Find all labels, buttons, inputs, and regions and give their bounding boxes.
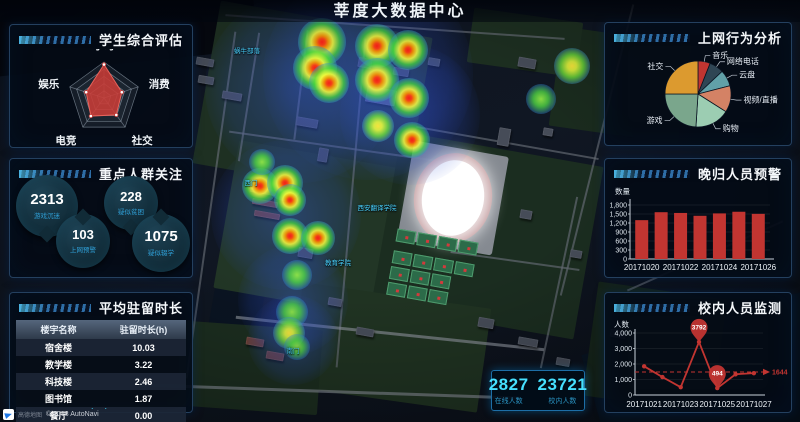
svg-text:3,000: 3,000 — [614, 346, 632, 353]
dashboard: 蜗牛部落西门西安翻译学院教育学院南门 莘度大数据中心 学生综合评估 学习消费社交… — [0, 0, 800, 422]
table-row: 教学楼3.22 — [16, 356, 186, 373]
heat-blob — [394, 122, 430, 158]
table-cell: 10.03 — [101, 339, 186, 356]
map-label: 蜗牛部落 — [234, 45, 260, 55]
focus-badge: 103上网预警 — [56, 214, 110, 268]
heat-blob — [309, 63, 349, 103]
svg-text:1,000: 1,000 — [614, 377, 632, 384]
table-cell: 宿舍楼 — [16, 339, 101, 356]
campus-count-label: 校内人数 — [538, 396, 588, 406]
building — [555, 357, 570, 367]
focus-badge-value: 228 — [120, 190, 142, 203]
svg-text:900: 900 — [615, 230, 627, 237]
panel-focus-groups: 重点人群关注 2313游戏沉迷228疑似贫困103上网预警1075疑似辍学 — [9, 158, 193, 278]
panel-campus-monitor: 校内人员监测 人数01,0002,0003,0004,0001644201710… — [604, 292, 792, 413]
building — [542, 127, 553, 137]
svg-text:1644: 1644 — [772, 369, 788, 376]
panel-title: 晚归人员预警 — [698, 164, 782, 183]
svg-text:人数: 人数 — [614, 319, 629, 329]
svg-text:20171023: 20171023 — [663, 400, 699, 409]
court — [416, 232, 437, 248]
svg-text:20171022: 20171022 — [663, 263, 699, 272]
focus-badge-value: 2313 — [30, 192, 63, 207]
svg-text:数量: 数量 — [615, 186, 630, 196]
campus-count: 23721 校内人数 — [538, 376, 588, 406]
svg-text:20171025: 20171025 — [699, 400, 735, 409]
campus-count-value: 23721 — [538, 376, 588, 393]
svg-text:4,000: 4,000 — [614, 331, 632, 338]
map-label: 西门 — [245, 177, 258, 187]
table-row: 宿舍楼10.03 — [16, 339, 186, 356]
copyright-text: © 2018 AutoNavi — [46, 411, 99, 418]
header-hatch-decoration — [614, 304, 690, 312]
svg-text:20171020: 20171020 — [624, 263, 660, 272]
court — [428, 289, 449, 305]
svg-text:学习: 学习 — [94, 49, 115, 52]
heat-blob — [526, 84, 556, 114]
focus-badge-label: 游戏沉迷 — [34, 210, 60, 220]
heat-blob — [362, 110, 394, 142]
population-stats: 2827 在线人数 23721 校内人数 — [491, 370, 585, 411]
table-column-header: 楼宇名称 — [16, 320, 101, 339]
heat-blob — [249, 149, 275, 175]
building — [519, 209, 532, 220]
panel-title: 学生综合评估 — [99, 30, 183, 49]
focus-badge-value: 1075 — [144, 229, 177, 244]
header-hatch-decoration — [19, 36, 91, 44]
court — [433, 258, 454, 274]
map-attribution: 高德地图 © 2018 AutoNavi — [3, 409, 99, 420]
heat-blob — [554, 48, 590, 84]
svg-text:20171026: 20171026 — [740, 263, 776, 272]
focus-badge-label: 上网预警 — [70, 244, 96, 254]
heat-blob — [301, 221, 335, 255]
svg-text:视频/直播: 视频/直播 — [744, 95, 778, 105]
panel-dwell-time: 平均驻留时长 楼宇名称驻留时长(h)宿舍楼10.03教学楼3.22科技楼2.46… — [9, 292, 193, 413]
pie-chart: 音乐网络电话云盘视频/直播购物游戏社交 — [605, 47, 791, 145]
panel-student-evaluation: 学生综合评估 学习消费社交电竞娱乐 — [9, 24, 193, 148]
court — [392, 250, 413, 266]
online-count-value: 2827 — [489, 376, 529, 393]
map-label: 南门 — [287, 345, 300, 355]
heat-blob — [274, 184, 306, 216]
svg-text:1,800: 1,800 — [609, 203, 627, 210]
table-row: 科技楼2.46 — [16, 373, 186, 390]
page-title: 莘度大数据中心 — [0, 0, 800, 22]
svg-text:600: 600 — [615, 239, 627, 246]
svg-text:消费: 消费 — [149, 77, 170, 90]
svg-text:2,000: 2,000 — [614, 362, 632, 369]
table-cell: 3.22 — [101, 356, 186, 373]
svg-text:494: 494 — [712, 371, 723, 378]
table-cell: 教学楼 — [16, 356, 101, 373]
court — [386, 282, 407, 298]
svg-text:300: 300 — [615, 248, 627, 255]
table-cell: 2.46 — [101, 373, 186, 390]
svg-text:社交: 社交 — [131, 134, 153, 147]
panel-title: 校内人员监测 — [698, 298, 782, 317]
svg-text:音乐: 音乐 — [712, 50, 728, 60]
panel-title: 平均驻留时长 — [99, 298, 183, 317]
court — [430, 273, 451, 289]
court — [458, 239, 479, 255]
svg-text:1,500: 1,500 — [609, 212, 627, 219]
panel-late-return: 晚归人员预警 数量03006009001,2001,5001,800201710… — [604, 158, 792, 278]
table-column-header: 驻留时长(h) — [101, 320, 186, 339]
table-cell: 科技楼 — [16, 373, 101, 390]
svg-text:电竞: 电竞 — [55, 134, 76, 147]
online-count: 2827 在线人数 — [489, 376, 529, 406]
svg-text:20171021: 20171021 — [626, 400, 662, 409]
court — [437, 236, 458, 252]
online-count-label: 在线人数 — [489, 396, 529, 406]
svg-text:购物: 购物 — [723, 123, 739, 133]
focus-badge-label: 疑似辍学 — [148, 247, 174, 257]
header-hatch-decoration — [19, 304, 91, 312]
court — [410, 270, 431, 286]
amap-logo-icon — [3, 409, 14, 420]
svg-text:20171024: 20171024 — [702, 263, 738, 272]
court — [407, 285, 428, 301]
court — [454, 261, 475, 277]
map-label: 教育学院 — [325, 257, 351, 267]
focus-badge-value: 103 — [72, 228, 94, 241]
heat-blob — [282, 260, 312, 290]
panel-title: 上网行为分析 — [698, 28, 782, 47]
court — [412, 254, 433, 270]
heat-blob — [389, 78, 429, 118]
svg-text:云盘: 云盘 — [739, 70, 755, 80]
svg-text:20171027: 20171027 — [736, 400, 772, 409]
panel-internet-behavior: 上网行为分析 音乐网络电话云盘视频/直播购物游戏社交 — [604, 22, 792, 146]
line-chart: 人数01,0002,0003,0004,00016442017102120171… — [605, 317, 791, 412]
svg-text:娱乐: 娱乐 — [38, 77, 59, 90]
svg-text:1,200: 1,200 — [609, 221, 627, 228]
radar-chart: 学习消费社交电竞娱乐 — [10, 49, 192, 147]
svg-text:3792: 3792 — [692, 324, 707, 331]
court — [389, 266, 410, 282]
header-hatch-decoration — [614, 34, 690, 42]
bar-chart: 数量03006009001,2001,5001,8002017102020171… — [605, 183, 791, 277]
svg-text:游戏: 游戏 — [647, 115, 663, 125]
svg-text:社交: 社交 — [647, 61, 663, 71]
header-hatch-decoration — [614, 170, 690, 178]
focus-badge-label: 疑似贫困 — [118, 206, 144, 216]
svg-text:网络电话: 网络电话 — [727, 56, 759, 66]
court — [396, 229, 417, 245]
amap-logo-text: 高德地图 — [18, 410, 42, 419]
focus-badge: 1075疑似辍学 — [132, 214, 190, 272]
heat-blob — [388, 30, 428, 70]
map-label: 西安翻译学院 — [358, 202, 397, 212]
svg-text:0: 0 — [628, 393, 632, 400]
